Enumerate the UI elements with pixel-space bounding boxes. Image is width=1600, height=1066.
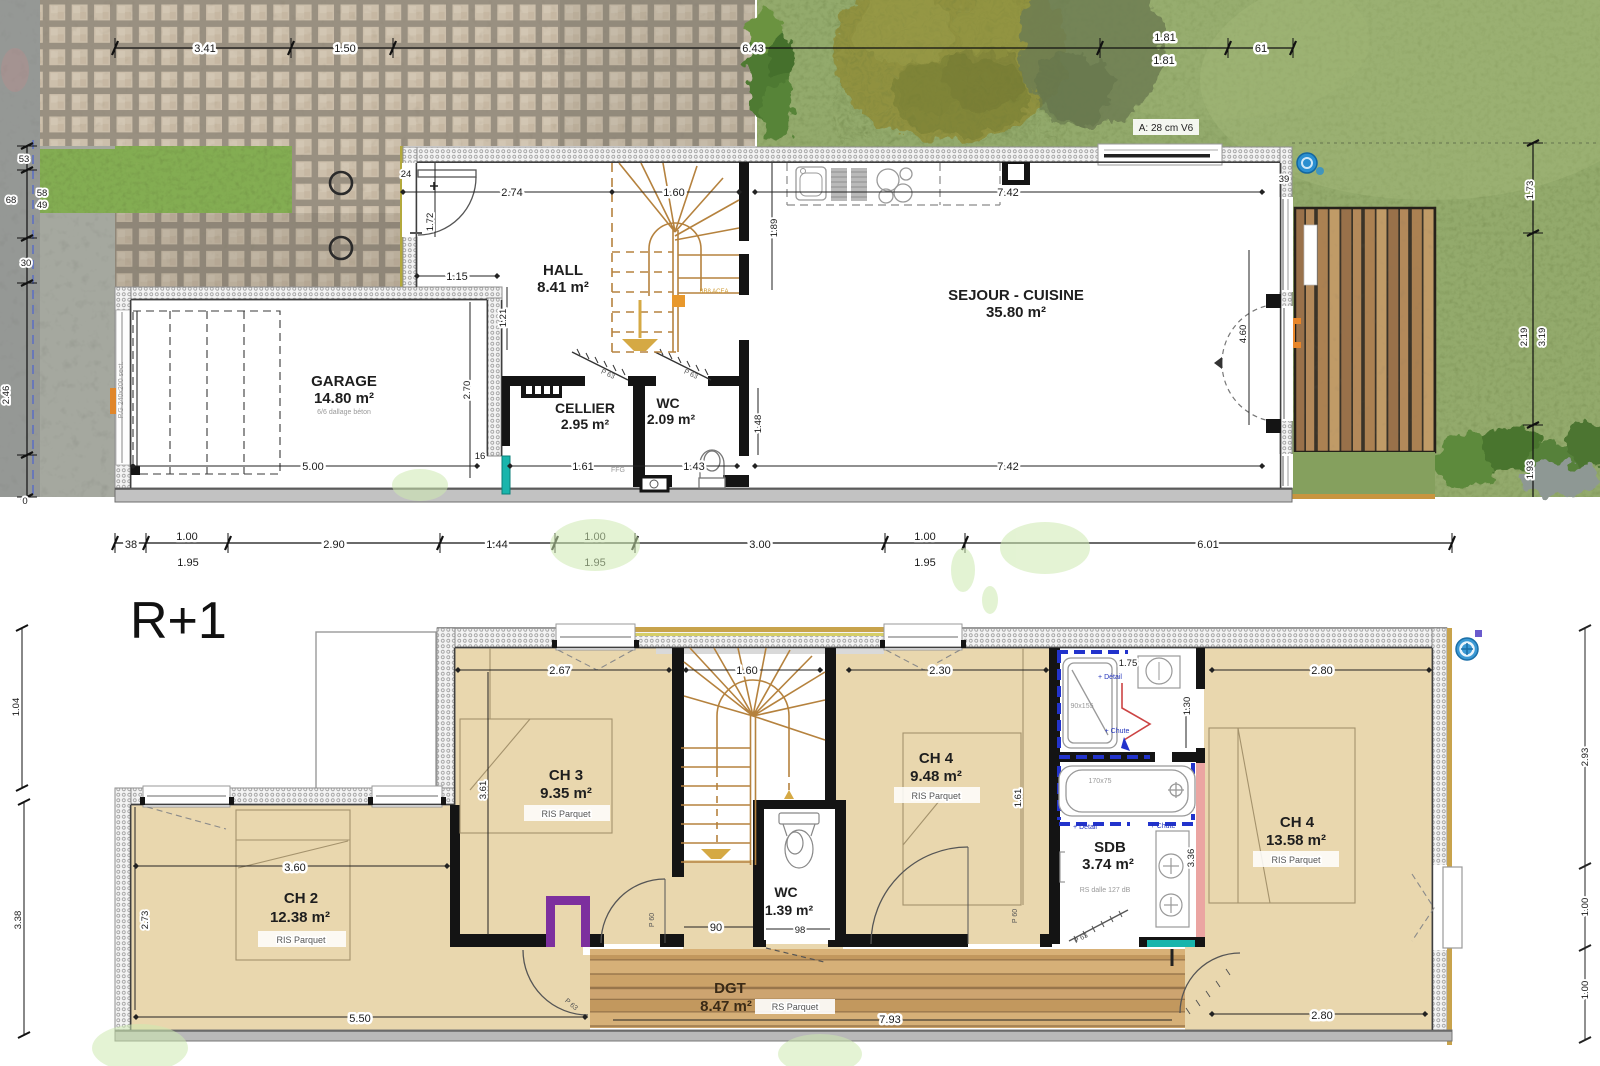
svg-text:1.00: 1.00 [176,531,197,543]
svg-text:P 60: P 60 [649,913,656,927]
svg-text:1.21: 1.21 [498,309,509,328]
svg-text:P 60: P 60 [1012,909,1019,923]
svg-text:+ Détail: + Détail [1098,674,1122,681]
svg-text:3.19: 3.19 [1537,328,1548,347]
svg-text:35.80 m²: 35.80 m² [986,304,1046,321]
svg-text:+ Chute: + Chute [1151,823,1176,830]
svg-text:38: 38 [125,539,137,551]
svg-text:1.93: 1.93 [1525,461,1536,480]
svg-text:1.60: 1.60 [736,665,757,677]
svg-text:9.35 m²: 9.35 m² [540,785,592,802]
svg-text:16: 16 [475,451,486,462]
svg-text:53: 53 [19,154,30,165]
svg-text:2.95 m²: 2.95 m² [561,416,610,432]
svg-text:90x155: 90x155 [1071,703,1094,710]
svg-text:3.61: 3.61 [478,781,489,800]
svg-text:1.00: 1.00 [914,531,935,543]
svg-text:98: 98 [795,925,806,936]
svg-text:68: 68 [6,195,17,206]
svg-text:2.70: 2.70 [462,381,473,400]
svg-text:2.30: 2.30 [929,665,950,677]
svg-text:1.81: 1.81 [1153,55,1174,67]
svg-text:1.30: 1.30 [1182,697,1193,716]
svg-text:3.74 m²: 3.74 m² [1082,856,1134,873]
svg-text:8.47 m²: 8.47 m² [700,998,752,1015]
svg-text:7.42: 7.42 [997,461,1018,473]
svg-text:DGT: DGT [714,980,746,997]
svg-text:2.19: 2.19 [1519,328,1530,347]
svg-text:5.00: 5.00 [302,461,323,473]
svg-text:R+1: R+1 [130,592,227,650]
svg-text:49: 49 [37,200,48,211]
svg-text:2.93: 2.93 [1580,748,1591,767]
svg-text:2.80: 2.80 [1311,665,1332,677]
svg-text:1.00: 1.00 [1580,981,1591,1000]
svg-text:1.04: 1.04 [11,698,22,717]
svg-text:CH 2: CH 2 [284,890,318,907]
svg-text:61: 61 [1255,43,1267,55]
svg-text:1.73: 1.73 [1525,181,1536,200]
svg-text:1.95: 1.95 [914,557,935,569]
svg-text:2.73: 2.73 [140,911,151,930]
svg-text:1.15: 1.15 [446,271,467,283]
svg-text:12.38 m²: 12.38 m² [270,909,330,926]
svg-text:RIS Parquet: RIS Parquet [276,935,326,945]
svg-text:GARAGE: GARAGE [311,373,377,390]
svg-text:1.60: 1.60 [663,187,684,199]
svg-text:8.41 m²: 8.41 m² [537,279,589,296]
svg-text:3.00: 3.00 [749,539,770,551]
svg-text:1.95: 1.95 [177,557,198,569]
svg-text:1.50: 1.50 [334,43,355,55]
svg-text:1.39 m²: 1.39 m² [765,902,814,918]
svg-text:1.48: 1.48 [753,415,764,434]
svg-text:HALL: HALL [543,262,583,279]
svg-text:6.01: 6.01 [1197,539,1218,551]
svg-text:BB8 ACEA: BB8 ACEA [699,289,728,295]
svg-text:WC: WC [656,395,679,411]
svg-text:13.58 m²: 13.58 m² [1266,832,1326,849]
svg-text:6/6 dallage béton: 6/6 dallage béton [317,409,371,416]
svg-text:3.60: 3.60 [284,862,305,874]
svg-text:24: 24 [401,169,412,180]
svg-text:A: 28 cm V6: A: 28 cm V6 [1139,123,1194,134]
svg-text:30: 30 [21,258,32,269]
svg-text:90: 90 [710,922,722,934]
svg-text:1.89: 1.89 [769,219,780,238]
svg-text:3.38: 3.38 [13,911,24,930]
svg-text:2.80: 2.80 [1311,1010,1332,1022]
svg-text:CH 3: CH 3 [549,767,583,784]
svg-text:CH 4: CH 4 [919,750,954,767]
svg-text:1.61: 1.61 [572,461,593,473]
svg-text:6.43: 6.43 [742,43,763,55]
svg-text:2.74: 2.74 [501,187,522,199]
svg-text:RIS Parquet: RIS Parquet [1271,855,1321,865]
svg-text:1.75: 1.75 [1119,658,1138,669]
svg-text:FFG: FFG [611,467,625,474]
svg-text:9.48 m²: 9.48 m² [910,768,962,785]
svg-text:58: 58 [37,188,48,199]
svg-text:2.46: 2.46 [1,386,12,405]
svg-text:1.43: 1.43 [683,461,704,473]
svg-text:14.80 m²: 14.80 m² [314,390,374,407]
svg-text:RIS Parquet: RIS Parquet [541,809,591,819]
svg-text:1.61: 1.61 [1013,789,1024,808]
svg-text:4.60: 4.60 [1238,325,1249,344]
svg-text:1.44: 1.44 [486,539,507,551]
svg-text:3.41: 3.41 [194,43,215,55]
svg-text:7.93: 7.93 [879,1014,900,1026]
svg-text:0: 0 [22,496,27,507]
svg-text:2.09 m²: 2.09 m² [647,411,696,427]
svg-text:39: 39 [1279,174,1290,185]
svg-text:RS dalle 127 dB: RS dalle 127 dB [1080,887,1131,894]
svg-text:+ Détail: + Détail [1073,824,1097,831]
svg-text:RS Parquet: RS Parquet [772,1002,819,1012]
svg-text:1.00: 1.00 [1580,898,1591,917]
svg-text:P.G 240x200 sect.: P.G 240x200 sect. [118,362,125,419]
svg-text:2.90: 2.90 [323,539,344,551]
svg-text:RIS Parquet: RIS Parquet [911,791,961,801]
svg-text:2.67: 2.67 [549,665,570,677]
svg-text:+ Chute: + Chute [1105,728,1130,735]
svg-text:3.36: 3.36 [1186,849,1197,868]
svg-text:7.42: 7.42 [997,187,1018,199]
svg-text:WC: WC [774,884,797,900]
svg-text:5.50: 5.50 [349,1013,370,1025]
svg-text:CH 4: CH 4 [1280,814,1315,831]
svg-text:SDB: SDB [1094,839,1126,856]
svg-text:SEJOUR - CUISINE: SEJOUR - CUISINE [948,287,1084,304]
svg-text:CELLIER: CELLIER [555,400,615,416]
svg-text:170x75: 170x75 [1089,778,1112,785]
svg-text:1.81: 1.81 [1154,32,1175,44]
svg-text:1.72: 1.72 [425,213,436,232]
